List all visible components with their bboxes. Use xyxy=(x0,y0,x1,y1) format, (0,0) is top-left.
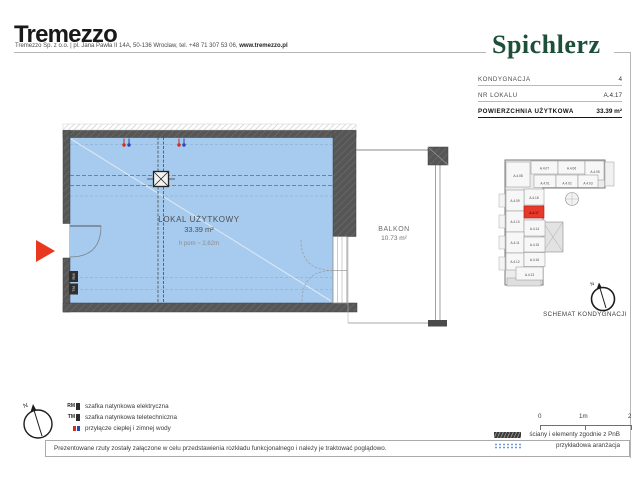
unit-label: A.4.18 xyxy=(529,196,538,200)
electric-cabinet-icon: RM xyxy=(58,403,80,410)
legend-item-water-connection: przyłącze ciepłej i zimnej wody xyxy=(58,424,171,432)
balcony-name-label: BALKON xyxy=(378,226,409,233)
developer-address-text: Tremezzo Sp. z o.o. | pl. Jana Pawła II … xyxy=(15,43,239,49)
balcony-bottom-pillar xyxy=(428,320,447,327)
hot-water-pin-icon xyxy=(73,426,76,431)
north-label: N xyxy=(590,281,596,288)
north-compass-icon: N xyxy=(16,400,60,442)
cabinet-tm-label: TM xyxy=(71,286,76,292)
project-logo: Spichlerz xyxy=(492,30,601,60)
legend-label: ściany i elementy zgodnie z PnB xyxy=(500,431,620,438)
north-label: N xyxy=(23,403,29,410)
unit-label: A.4.06 xyxy=(567,167,576,171)
entrance-arrow xyxy=(36,240,55,262)
table-row: NR LOKALU A.4.17 xyxy=(478,86,622,102)
unit-info-table: KONDYGNACJA 4 NR LOKALU A.4.17 POWIERZCH… xyxy=(478,70,622,118)
table-row-area: POWIERZCHNIA UŻYTKOWA 33.39 m² xyxy=(478,102,622,118)
wall-bottom xyxy=(63,303,357,312)
row-value: 4 xyxy=(618,76,622,83)
row-label: POWIERZCHNIA UŻYTKOWA xyxy=(478,108,574,115)
row-value: 33.39 m² xyxy=(596,108,622,115)
cold-water-pin-icon xyxy=(77,426,80,431)
unit-floor-plan: RM TM LOKAL UŻYTKOWY 33.39 m² h pom ~ 2,… xyxy=(30,118,462,340)
cabinet-icon-text: RM xyxy=(67,403,75,409)
developer-website: www.tremezzo.pl xyxy=(239,43,287,49)
cabinet-rm-label: RM xyxy=(71,273,76,279)
wall-right-upper xyxy=(333,131,356,237)
hot-water-marker xyxy=(177,143,180,146)
legend-label: przyłącze ciepłej i zimnej wody xyxy=(85,425,171,432)
disclaimer-text: Prezentowane rzuty zostały załączone w c… xyxy=(54,445,387,452)
floor-plan-sheet: Tremezzo Tremezzo Sp. z o.o. | pl. Jana … xyxy=(0,0,640,480)
unit-label: A.4.03 xyxy=(583,182,592,186)
cabinet-icon-box xyxy=(76,414,80,421)
unit-label: A.4.12 xyxy=(510,260,519,264)
hot-water-marker xyxy=(122,143,125,146)
unit-label: A.4.07 xyxy=(540,167,549,171)
row-label: NR LOKALU xyxy=(478,92,518,99)
scale-tick-label: 1m xyxy=(579,413,588,420)
row-value: A.4.17 xyxy=(604,92,622,99)
unit-label: A.4.13 xyxy=(525,273,534,277)
unit-label: A.4.01 xyxy=(540,182,549,186)
cabinet-icon-text: TM xyxy=(68,414,75,420)
unit-label: A.4.11 xyxy=(511,241,520,245)
unit-label: A.4.09 xyxy=(510,199,519,203)
scale-bar-ruler xyxy=(540,425,632,430)
unit-label: A.4.14 xyxy=(530,227,539,231)
header-divider xyxy=(14,52,486,53)
wall-top xyxy=(63,131,356,138)
scale-tick xyxy=(585,426,586,430)
legend-label: szafka natynkowa teletechniczna xyxy=(85,414,177,421)
unit-label: A.4.08 xyxy=(513,174,522,178)
unit-label: A.4.05 xyxy=(590,170,599,174)
balcony-glazing xyxy=(333,237,347,304)
cold-water-marker xyxy=(182,143,185,146)
legend-label: szafka natynkowa elektryczna xyxy=(85,403,169,410)
unit-label: A.4.02 xyxy=(562,182,571,186)
row-label: KONDYGNACJA xyxy=(478,76,531,83)
room-name-label: LOKAL UŻYTKOWY xyxy=(158,215,240,224)
wall-left-upper xyxy=(63,131,70,224)
unit-label: A.4.15 xyxy=(530,243,539,247)
scale-bar-numbers: 0 1m 2 xyxy=(537,413,633,421)
developer-address: Tremezzo Sp. z o.o. | pl. Jana Pawła II … xyxy=(15,43,288,49)
table-row: KONDYGNACJA 4 xyxy=(478,70,622,86)
unit-label: A.4.16 xyxy=(530,258,539,262)
room-area-label: 33.39 m² xyxy=(184,225,214,234)
scale-tick-label: 0 xyxy=(538,413,541,420)
balcony-area-label: 10.73 m² xyxy=(381,235,407,242)
unit-label: A.4.10 xyxy=(510,220,519,224)
schematic-caption: SCHEMAT KONDYGNACJI xyxy=(543,311,627,318)
legend-item-tele-cabinet: TM szafka natynkowa teletechniczna xyxy=(58,413,177,421)
floor-schematic: A.4.07 A.4.06 A.4.05 A.4.08 A.4.01 A.4.0… xyxy=(488,148,634,290)
water-connection-icon xyxy=(58,426,80,431)
cabinet-icon-box xyxy=(76,403,80,410)
insulation-strip xyxy=(63,124,356,130)
schematic-units xyxy=(506,161,604,280)
legend-label: przykładowa aranżacja xyxy=(500,442,620,449)
room-height-label: h pom ~ 2,62m xyxy=(179,241,219,247)
scale-tick-label: 2 xyxy=(628,413,631,420)
cold-water-marker xyxy=(127,143,130,146)
tele-cabinet-icon: TM xyxy=(58,414,80,421)
frame-corner-line xyxy=(614,52,631,53)
highlighted-unit-label: A.4.17 xyxy=(529,211,539,215)
scale-tick xyxy=(540,426,541,430)
scale-tick xyxy=(631,426,632,430)
legend-item-electric-cabinet: RM szafka natynkowa elektryczna xyxy=(58,402,169,410)
